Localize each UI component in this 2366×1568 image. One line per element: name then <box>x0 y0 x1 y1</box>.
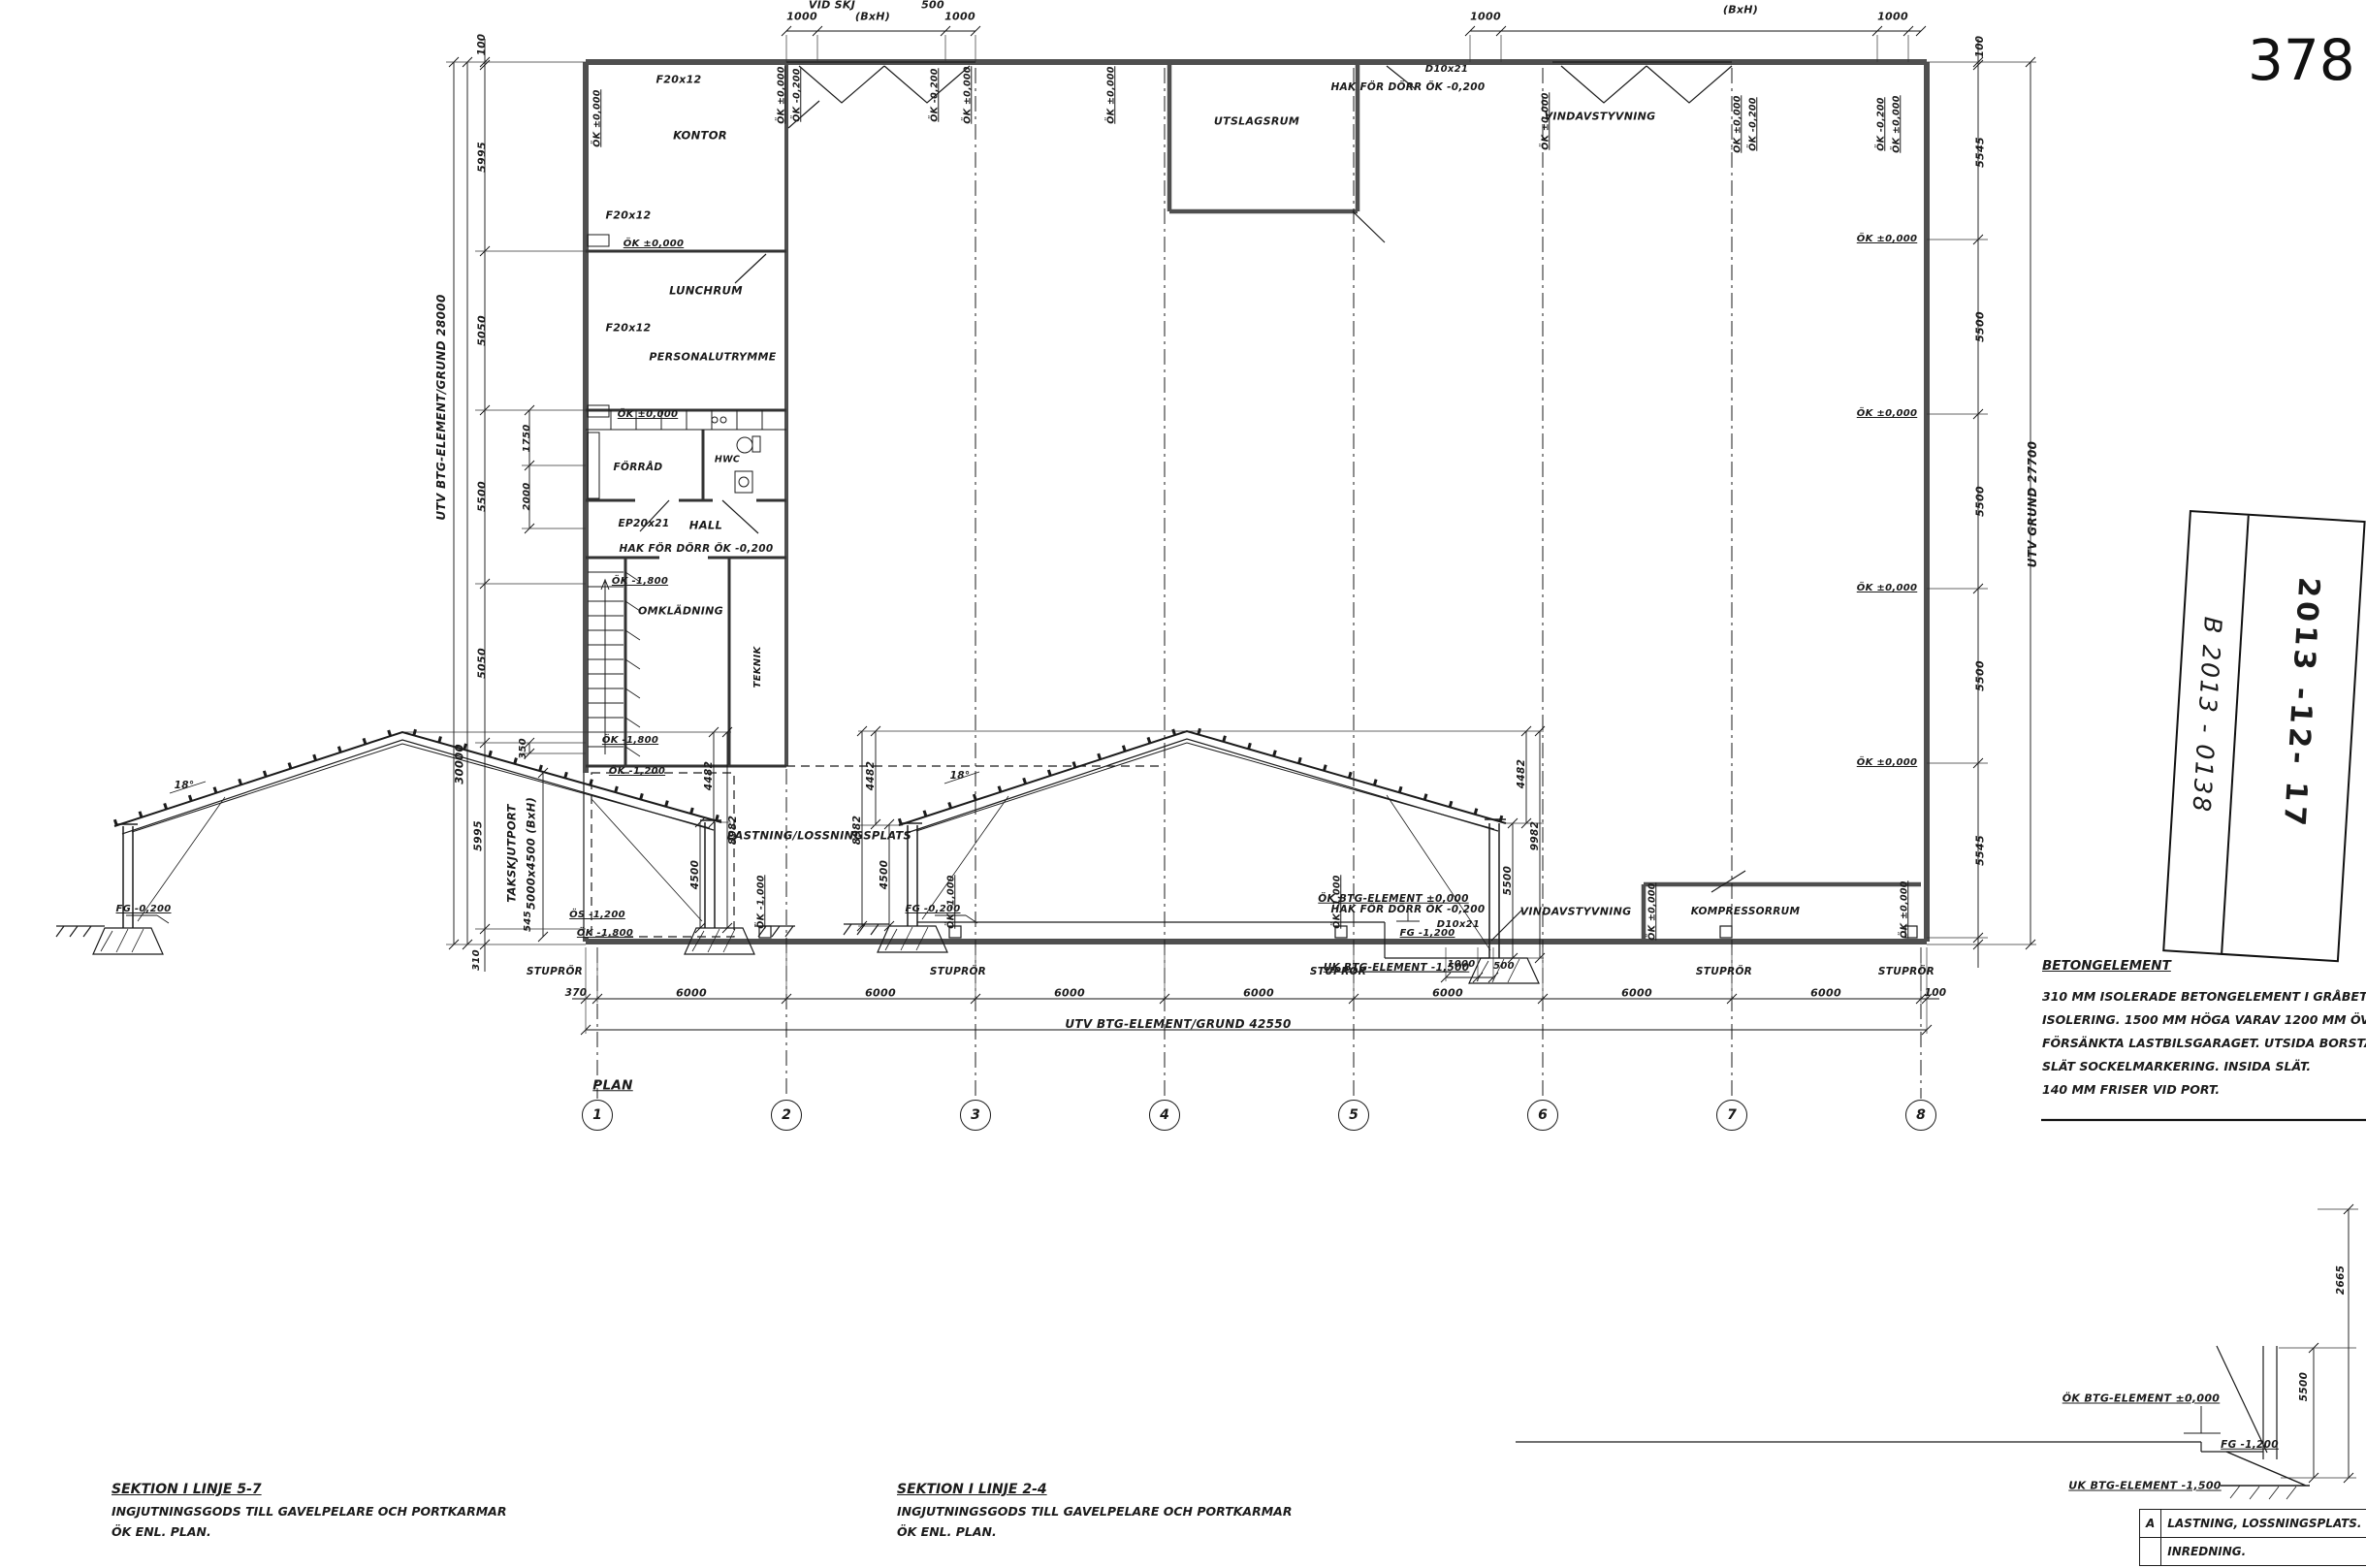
grid-bubble-3: 3 <box>960 1100 991 1131</box>
level: FG -0,200 <box>905 905 960 914</box>
level: ÖS -1,200 <box>569 911 625 920</box>
dim: 6000 <box>1243 988 1274 999</box>
slope: 18° <box>175 781 195 791</box>
legend-key <box>2140 1538 2161 1566</box>
dim: 1000 <box>1470 12 1501 22</box>
dim: 370 <box>565 988 588 999</box>
section-note: ÖK ENL. PLAN. <box>897 1524 1292 1539</box>
dim: 5500 <box>2299 1372 2310 1401</box>
dim: 5500 <box>1975 660 1986 691</box>
level: ÖK ±0,000 <box>1857 584 1917 593</box>
grid-bubble-5: 5 <box>1338 1100 1369 1131</box>
dim: 100 <box>1975 36 1986 58</box>
dimension-lines <box>449 26 2353 1483</box>
dim: 6000 <box>1810 988 1841 999</box>
dim: (BxH) <box>1723 5 1758 16</box>
dim: 9982 <box>1530 821 1541 850</box>
door-spec: 5000x4500 (BxH) <box>526 797 537 910</box>
level: FG -1,200 <box>1399 929 1455 939</box>
dim: UTV BTG-ELEMENT/GRUND 28000 <box>435 294 447 520</box>
grid-bubble-6: 6 <box>1527 1100 1558 1131</box>
level: ÖK -0,200 <box>1876 97 1886 150</box>
dim: 5500 <box>1503 866 1514 895</box>
level: ÖK ±0,000 <box>963 66 973 123</box>
level: ÖK ±0,000 <box>592 89 602 146</box>
dim: 1000 <box>1877 12 1908 22</box>
notes-line: FÖRSÄNKTA LASTBILSGARAGET. UTSIDA BORSTA… <box>2042 1036 2366 1050</box>
notes-line: ISOLERING. 1500 MM HÖGA VARAV 1200 MM ÖV… <box>2042 1012 2366 1027</box>
pipe-label: STUPRÖR <box>1696 967 1752 977</box>
notes-line: 140 MM FRISER VID PORT. <box>2042 1082 2366 1097</box>
notes-line: 310 MM ISOLERADE BETONGELEMENT I GRÅBETO… <box>2042 989 2366 1004</box>
dim: 500 <box>1493 962 1515 972</box>
dim: 2000 <box>523 482 532 510</box>
dim: 6000 <box>865 988 896 999</box>
level: UK BTG-ELEMENT -1,500 <box>1324 963 1470 974</box>
dim: 1000 <box>786 12 817 22</box>
section-note: ÖK ENL. PLAN. <box>112 1524 506 1539</box>
dim: 4482 <box>704 761 715 790</box>
dim: 5050 <box>477 315 488 346</box>
level: ÖK ±0,000 <box>777 66 786 123</box>
level: ÖK ±0,000 <box>1900 880 1909 938</box>
dim: UTV BTG-ELEMENT/GRUND 42550 <box>1065 1018 1291 1030</box>
dim: 30000 <box>454 744 465 784</box>
section-note: INGJUTNINGSGODS TILL GAVELPELARE OCH POR… <box>897 1504 1292 1519</box>
grid-bubble-2: 2 <box>771 1100 802 1131</box>
dim: 5050 <box>477 648 488 679</box>
door-spec: TAKSKJUTPORT <box>506 804 518 902</box>
dim: 4500 <box>690 860 701 889</box>
fixtures <box>586 235 786 498</box>
stamp-ref-number: B 2013 - 0138 <box>2187 616 2226 815</box>
dim: 4500 <box>879 860 890 889</box>
section-note: INGJUTNINGSGODS TILL GAVELPELARE OCH POR… <box>112 1504 506 1519</box>
approval-stamp: B 2013 - 0138 2013 -12- 17 <box>2162 510 2365 962</box>
dim: 100 <box>477 34 488 56</box>
dim: 350 <box>519 738 528 759</box>
page-number: 378 <box>2248 27 2355 93</box>
room-label: PERSONALUTRYMME <box>649 352 776 363</box>
legend-key: A <box>2140 1510 2161 1538</box>
section-5-7-title-block: SEKTION I LINJE 5-7 INGJUTNINGSGODS TILL… <box>112 1482 506 1539</box>
level: ÖK ±0,000 <box>1857 235 1917 244</box>
loading-area-outline <box>591 766 1159 937</box>
level: FG -0,200 <box>115 905 171 914</box>
dock-edge-detail <box>1516 1346 2310 1499</box>
dim: 545 <box>524 911 533 932</box>
drawing-sheet: VID SKJ5001000(BxH)10001000(BxH)1000100Ö… <box>0 0 2366 1568</box>
door-spec: EP20x21 <box>619 519 670 529</box>
level: ÖK ±0,000 <box>1733 95 1743 152</box>
dim: 5500 <box>1975 311 1986 342</box>
door-spec: D10x21 <box>1425 65 1468 75</box>
door-spec: HAK FÖR DÖRR ÖK -0,200 <box>620 544 774 555</box>
room-label: UTSLAGSRUM <box>1214 116 1299 127</box>
level: ÖK -1,000 <box>946 875 956 928</box>
grid-bubble-8: 8 <box>1905 1100 1936 1131</box>
pipe-label: STUPRÖR <box>527 967 583 977</box>
section-title: SEKTION I LINJE 2-4 <box>897 1482 1292 1497</box>
top-note-fragment: 500 <box>921 0 944 11</box>
level: ÖK -1,000 <box>756 875 766 928</box>
level: ÖK ±0,000 <box>623 240 684 249</box>
dim: 6000 <box>676 988 707 999</box>
pipe-label: STUPRÖR <box>1878 967 1934 977</box>
table-row: A LASTNING, LOSSNINGSPLATS. <box>2140 1510 2366 1538</box>
dim: 100 <box>1925 988 1947 999</box>
dim: 4482 <box>866 761 877 790</box>
level: ÖK -1,800 <box>577 929 633 939</box>
grid-bubble-4: 4 <box>1149 1100 1180 1131</box>
dim: 310 <box>472 949 482 971</box>
level: ÖK -0,200 <box>1748 97 1758 150</box>
dim: 2665 <box>2336 1265 2347 1295</box>
dim: 5545 <box>1975 835 1986 866</box>
dim: 5995 <box>477 142 488 173</box>
notes-heading: BETONGELEMENT <box>2042 958 2366 974</box>
window-spec: F20x12 <box>605 210 651 221</box>
level: ÖK ±0,000 <box>1892 95 1902 152</box>
level: ÖK BTG-ELEMENT ±0,000 <box>1318 894 1468 905</box>
section-5-7 <box>56 729 795 954</box>
level: UK BTG-ELEMENT -1,500 <box>2068 1481 2221 1491</box>
door-spec: HAK FÖR DÖRR ÖK -0,200 <box>1331 905 1486 915</box>
legend-value: LASTNING, LOSSNINGSPLATS. <box>2161 1510 2366 1538</box>
section-title: SEKTION I LINJE 5-7 <box>112 1482 506 1497</box>
level: ÖK -1,200 <box>609 767 665 777</box>
dim: 5500 <box>477 481 488 512</box>
room-label: FÖRRÅD <box>614 463 663 473</box>
dim: UTV GRUND 27700 <box>2027 441 2038 568</box>
level: ÖK ±0,000 <box>1857 758 1917 768</box>
legend-table: A LASTNING, LOSSNINGSPLATS. INREDNING. <box>2139 1509 2366 1566</box>
grid-bubble-1: 1 <box>582 1100 613 1131</box>
room-label: KOMPRESSORRUM <box>1691 907 1801 917</box>
dim: 4482 <box>1517 759 1527 788</box>
dim: 5500 <box>1975 486 1986 517</box>
dim: 1000 <box>944 12 975 22</box>
pipe-label: STUPRÖR <box>930 967 986 977</box>
level: FG -1,200 <box>2221 1440 2279 1451</box>
level: ÖK -1,800 <box>602 736 658 746</box>
dim: (BxH) <box>855 12 890 22</box>
room-label: TEKNIK <box>753 646 763 688</box>
plan-title: PLAN <box>592 1079 632 1093</box>
room-label: VINDAVSTYVNING <box>1545 112 1656 122</box>
dim: 6000 <box>1432 988 1463 999</box>
betongelement-notes: BETONGELEMENT 310 MM ISOLERADE BETONGELE… <box>2042 958 2366 1097</box>
room-label: KONTOR <box>673 130 727 142</box>
room-label: HALL <box>689 520 722 531</box>
plan-linework <box>0 0 2366 1568</box>
room-label: VINDAVSTYVNING <box>1520 907 1632 917</box>
level: ÖK ±0,000 <box>1647 882 1657 940</box>
grid-bubble-7: 7 <box>1716 1100 1747 1131</box>
table-row: INREDNING. <box>2140 1538 2366 1566</box>
window-spec: F20x12 <box>605 323 651 334</box>
room-label: LASTNING/LOSSNINGSPLATS <box>727 830 911 842</box>
section-2-4-title-block: SEKTION I LINJE 2-4 INGJUTNINGSGODS TILL… <box>897 1482 1292 1539</box>
level: ÖK -0,200 <box>792 68 802 121</box>
door-swings <box>640 66 1745 941</box>
door-spec: HAK FÖR DÖRR ÖK -0,200 <box>1331 82 1486 93</box>
level: ÖK BTG-ELEMENT ±0,000 <box>2062 1393 2221 1404</box>
notes-line: SLÄT SOCKELMARKERING. INSIDA SLÄT. <box>2042 1059 2366 1073</box>
dim: 6000 <box>1054 988 1085 999</box>
dim: 1750 <box>523 424 532 452</box>
stamp-date: 2013 -12- 17 <box>2277 576 2326 830</box>
window-spec: F20x12 <box>655 75 701 85</box>
room-label: LUNCHRUM <box>669 285 743 297</box>
top-note-fragment: VID SKJ <box>809 0 855 11</box>
level: ÖK ±0,000 <box>1857 409 1917 419</box>
level: ÖK -1,800 <box>612 577 668 587</box>
dim: 5545 <box>1975 137 1986 168</box>
level: ÖK ±0,000 <box>1106 66 1116 123</box>
legend-value: INREDNING. <box>2161 1538 2366 1566</box>
room-label: OMKLÄDNING <box>638 606 723 617</box>
dim: 8982 <box>728 816 739 845</box>
level: ÖK ±0,000 <box>618 410 678 420</box>
slope: 18° <box>950 771 971 782</box>
room-label: HWC <box>715 455 740 464</box>
dim: 5995 <box>473 820 484 851</box>
stairs <box>588 572 640 756</box>
dim: 6000 <box>1621 988 1652 999</box>
level: ÖK -0,200 <box>930 68 940 121</box>
dim: 8982 <box>852 816 863 845</box>
